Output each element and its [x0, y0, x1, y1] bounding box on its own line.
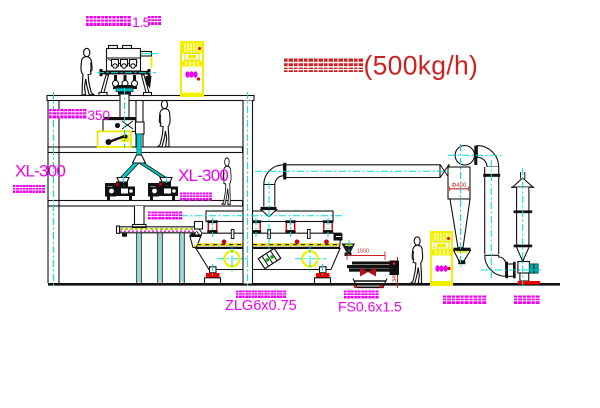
svg-text:350: 350: [88, 108, 111, 123]
svg-text:(500kg/h): (500kg/h): [364, 51, 479, 81]
svg-text:XL-300: XL-300: [15, 162, 65, 181]
svg-text:FS0.6x1.5: FS0.6x1.5: [338, 299, 402, 315]
svg-text:1500: 1500: [357, 249, 369, 255]
svg-text:1.5: 1.5: [132, 14, 151, 30]
svg-text:XL-300: XL-300: [178, 166, 228, 185]
svg-text:Φ400: Φ400: [452, 183, 467, 189]
svg-text:ZLG6x0.75: ZLG6x0.75: [225, 298, 297, 314]
